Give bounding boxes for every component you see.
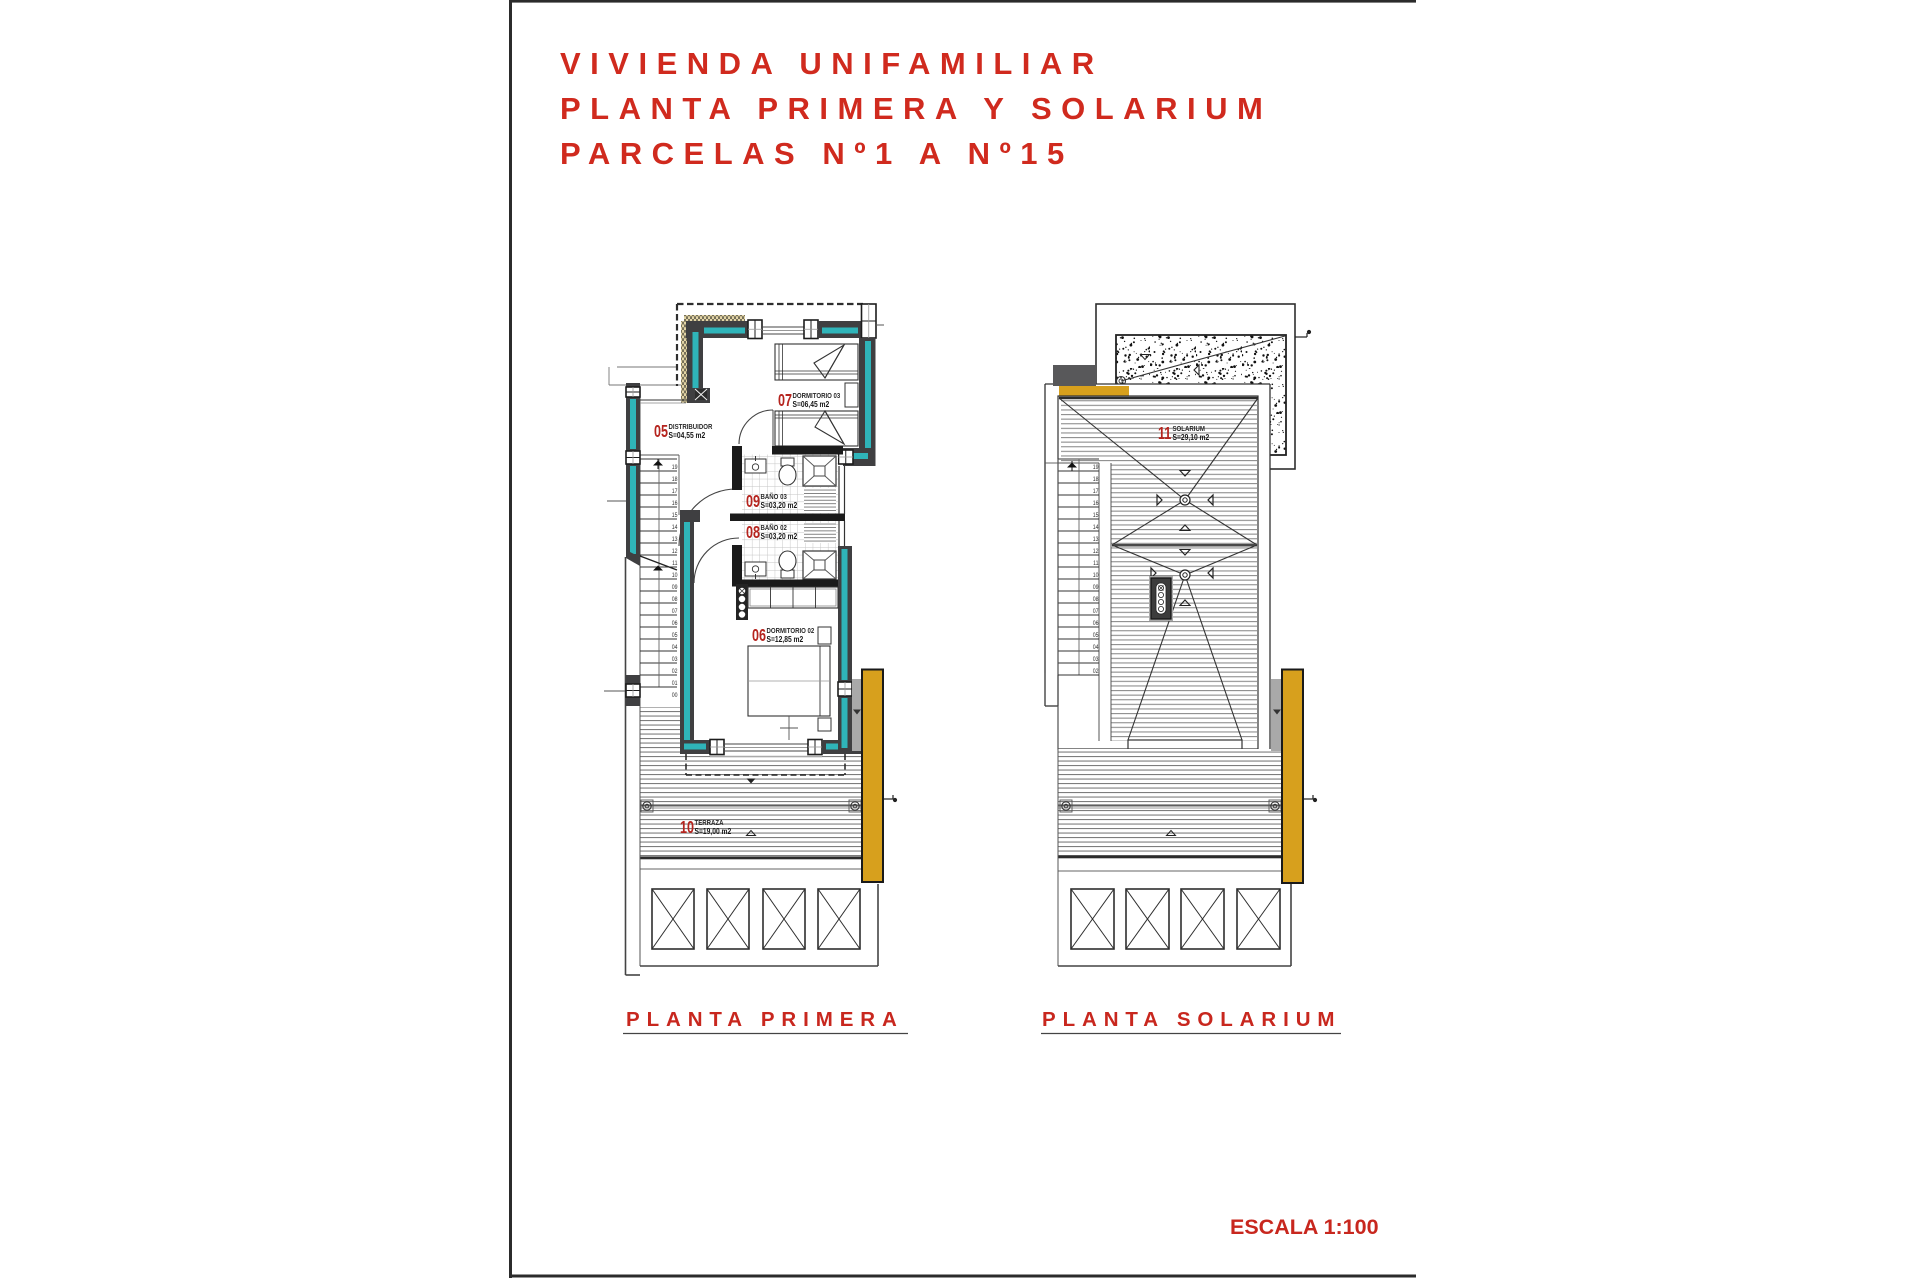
svg-text:VIVIENDA UNIFAMILIAR: VIVIENDA UNIFAMILIAR [560,46,1104,81]
svg-text:S=04,55 m2: S=04,55 m2 [669,430,706,440]
svg-text:17: 17 [672,488,678,495]
svg-text:05: 05 [1093,632,1099,639]
svg-text:00: 00 [672,692,678,699]
svg-text:PLANTA SOLARIUM: PLANTA SOLARIUM [1042,1008,1341,1031]
svg-text:06: 06 [672,620,678,627]
svg-text:S=03,20 m2: S=03,20 m2 [761,531,798,541]
svg-text:14: 14 [1093,524,1099,531]
svg-text:12: 12 [1093,548,1099,555]
svg-text:04: 04 [672,644,678,651]
svg-text:09: 09 [746,492,760,512]
svg-text:09: 09 [672,584,678,591]
svg-text:02: 02 [672,668,678,675]
svg-text:10: 10 [1093,572,1099,579]
svg-text:09: 09 [1093,584,1099,591]
svg-text:10: 10 [680,818,694,838]
svg-text:07: 07 [778,391,792,411]
svg-text:18: 18 [672,476,678,483]
svg-text:04: 04 [1093,644,1099,651]
svg-text:18: 18 [1093,476,1099,483]
svg-text:S=06,45 m2: S=06,45 m2 [793,399,830,409]
svg-text:PLANTA PRIMERA Y SOLARIUM: PLANTA PRIMERA Y SOLARIUM [560,91,1272,126]
svg-text:S=19,00 m2: S=19,00 m2 [695,826,732,836]
svg-text:08: 08 [672,596,678,603]
svg-text:05: 05 [654,422,668,442]
svg-text:S=03,20 m2: S=03,20 m2 [761,500,798,510]
svg-text:15: 15 [672,512,678,519]
svg-text:PLANTA PRIMERA: PLANTA PRIMERA [626,1008,904,1031]
svg-text:19: 19 [672,464,678,471]
svg-text:07: 07 [672,608,678,615]
svg-text:07: 07 [1093,608,1099,615]
svg-text:03: 03 [1093,656,1099,663]
svg-text:19: 19 [1093,464,1099,471]
svg-text:15: 15 [1093,512,1099,519]
svg-text:PARCELAS Nº1 A Nº15: PARCELAS Nº1 A Nº15 [560,136,1074,171]
svg-text:11: 11 [1093,560,1098,567]
svg-text:10: 10 [672,572,678,579]
svg-text:01: 01 [672,680,678,687]
svg-text:11: 11 [672,560,677,567]
svg-text:16: 16 [672,500,678,507]
svg-text:17: 17 [1093,488,1099,495]
svg-text:06: 06 [752,626,766,646]
svg-text:05: 05 [672,632,678,639]
svg-text:ESCALA 1:100: ESCALA 1:100 [1230,1215,1379,1239]
svg-text:16: 16 [1093,500,1099,507]
svg-text:12: 12 [672,548,678,555]
svg-text:08: 08 [746,523,760,543]
svg-text:13: 13 [672,536,678,543]
svg-text:03: 03 [672,656,678,663]
svg-text:S=12,85 m2: S=12,85 m2 [767,634,804,644]
svg-text:11: 11 [1158,424,1172,444]
svg-text:06: 06 [1093,620,1099,627]
svg-text:S=29,10 m2: S=29,10 m2 [1173,432,1210,442]
svg-text:13: 13 [1093,536,1099,543]
svg-text:08: 08 [1093,596,1099,603]
svg-text:02: 02 [1093,668,1099,675]
svg-text:14: 14 [672,524,678,531]
